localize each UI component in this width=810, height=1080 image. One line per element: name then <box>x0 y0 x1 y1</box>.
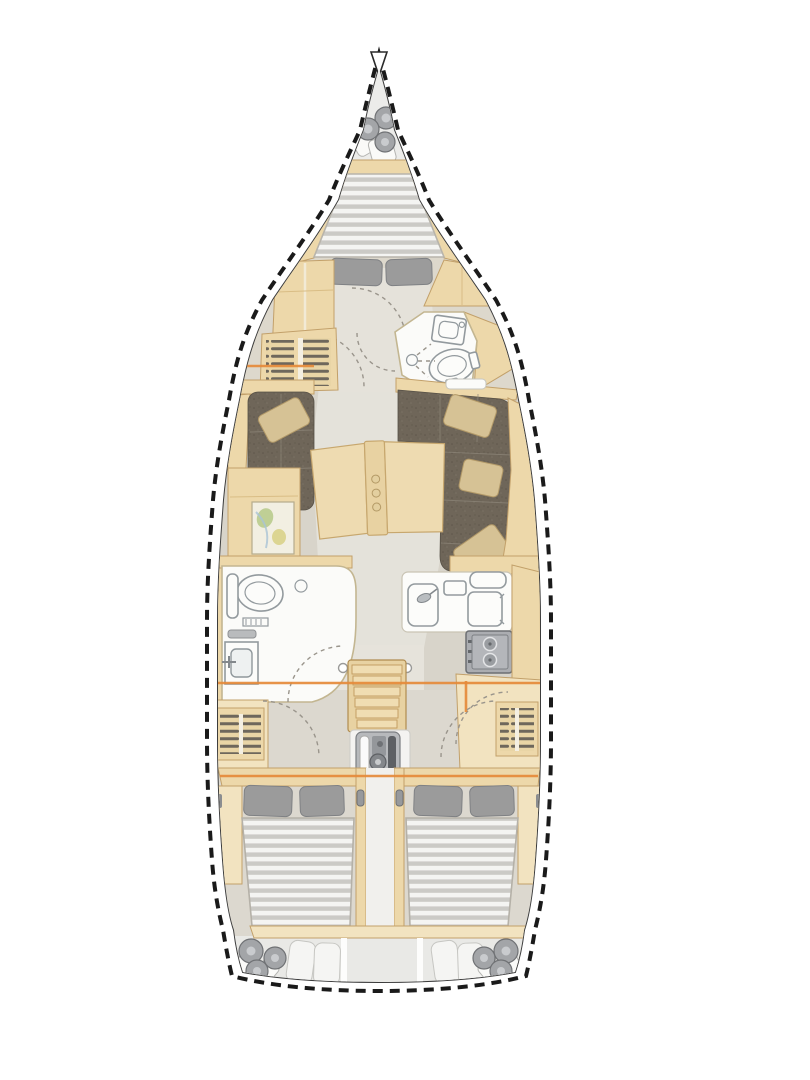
starboard-bed-pillow <box>469 785 514 817</box>
stove-knob <box>468 650 472 653</box>
port-cabin-door-handle <box>357 790 364 806</box>
bed-foot-trim <box>250 926 530 938</box>
table-leaf-port <box>310 443 367 539</box>
starboard-bed-pillow <box>413 785 462 817</box>
starboard-slatted-locker <box>496 702 538 756</box>
chart-table <box>228 468 300 568</box>
stove-knob <box>468 660 472 663</box>
starboard-hull-cabinet <box>518 786 544 884</box>
vberth-pillow-starboard <box>386 258 433 286</box>
deck-hatch <box>446 379 486 389</box>
salon-table <box>310 439 447 540</box>
port-bed-pillow <box>243 785 292 817</box>
forward-head-sink <box>431 315 466 345</box>
grab-handle-port <box>339 664 348 673</box>
galley-sink <box>408 584 438 626</box>
icebox-lid <box>470 572 506 588</box>
starboard-bed-mattress <box>406 818 518 926</box>
floorplan-canvas <box>0 0 810 1080</box>
stern-cushion <box>430 939 462 984</box>
cutting-board <box>444 581 466 595</box>
toilet-tank <box>227 574 238 618</box>
port-bed-pillow <box>299 785 344 817</box>
aft-head-sink <box>222 642 258 684</box>
stern-cushion <box>313 943 340 986</box>
bottle-holder <box>373 503 381 511</box>
fridge-lid <box>468 592 502 626</box>
center-compartment <box>366 768 394 935</box>
yacht-floorplan <box>0 0 810 1080</box>
bottle-holder <box>372 475 380 483</box>
bottle-holder <box>372 489 380 497</box>
chart-map <box>252 502 294 554</box>
aft-cabins <box>214 768 544 938</box>
port-hull-cabinet <box>214 786 242 884</box>
locker-slats <box>303 338 331 386</box>
stove-knob <box>468 640 472 643</box>
stove <box>466 631 512 673</box>
locker-slats <box>266 340 294 386</box>
aft-head-shelf <box>228 630 256 638</box>
vberth-pillow-port <box>330 258 383 286</box>
starboard-cabin-door-handle <box>396 790 403 806</box>
table-leaf-starboard <box>384 440 447 534</box>
stern-cushion <box>285 939 317 984</box>
port-bed-mattress <box>242 818 354 926</box>
table-spine <box>364 441 387 536</box>
